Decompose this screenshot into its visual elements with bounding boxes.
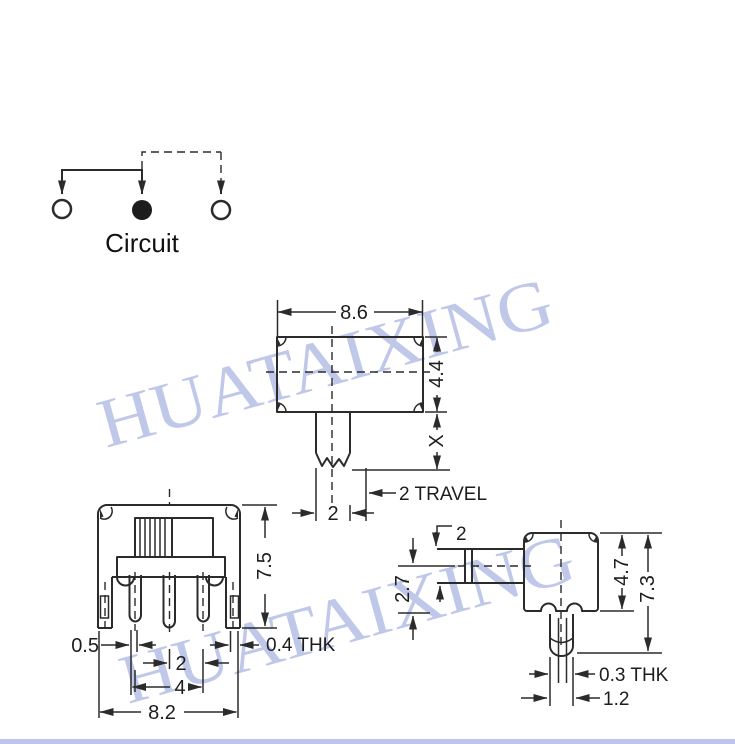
watermark-text: HUATAIXING xyxy=(90,264,562,463)
dim-terminal-width: 0.5 xyxy=(71,635,99,657)
dim-overall-width: 8.2 xyxy=(148,702,176,724)
technical-drawing-page: HUATAIXING HUATAIXING Circuit xyxy=(0,0,735,744)
dim-body-depth: 4.4 xyxy=(426,360,448,388)
dim-terminal-thickness: 0.3 THK xyxy=(599,665,669,686)
knob-ribs xyxy=(140,519,165,556)
break-line xyxy=(316,453,350,467)
watermark-top: HUATAIXING xyxy=(90,264,562,463)
dim-terminal-pitch: 2 xyxy=(175,653,186,675)
terminal-3-open xyxy=(212,201,230,219)
circuit-label: Circuit xyxy=(105,228,179,258)
dim-overall-height: 7.3 xyxy=(637,575,659,603)
knob-slot xyxy=(135,518,213,557)
slide-switch-drawing: HUATAIXING HUATAIXING Circuit xyxy=(0,0,735,744)
dim-terminal-span: 4 xyxy=(174,677,185,699)
dim-terminal-width-side: 1.2 xyxy=(603,689,629,710)
circuit-diagram: Circuit xyxy=(53,152,230,258)
dim-shaft-height: X xyxy=(426,434,448,447)
dim-actuator-center-height: 2.7 xyxy=(392,575,414,603)
dim-shaft-width: 2 xyxy=(327,503,338,525)
dim-bracket-thickness: 0.4 THK xyxy=(266,635,336,656)
dim-actuator-thickness: 2 xyxy=(456,524,467,545)
knob-base xyxy=(117,557,225,577)
terminal-1-open xyxy=(53,200,71,218)
dim-front-height: 7.5 xyxy=(254,552,276,580)
dim-body-width: 8.6 xyxy=(340,302,368,324)
terminal-2-common-filled xyxy=(132,200,152,220)
bottom-border xyxy=(0,739,735,744)
dim-body-height: 4.7 xyxy=(611,558,633,586)
dim-travel: 2 TRAVEL xyxy=(399,484,487,505)
terminal-pin-side xyxy=(550,614,573,656)
